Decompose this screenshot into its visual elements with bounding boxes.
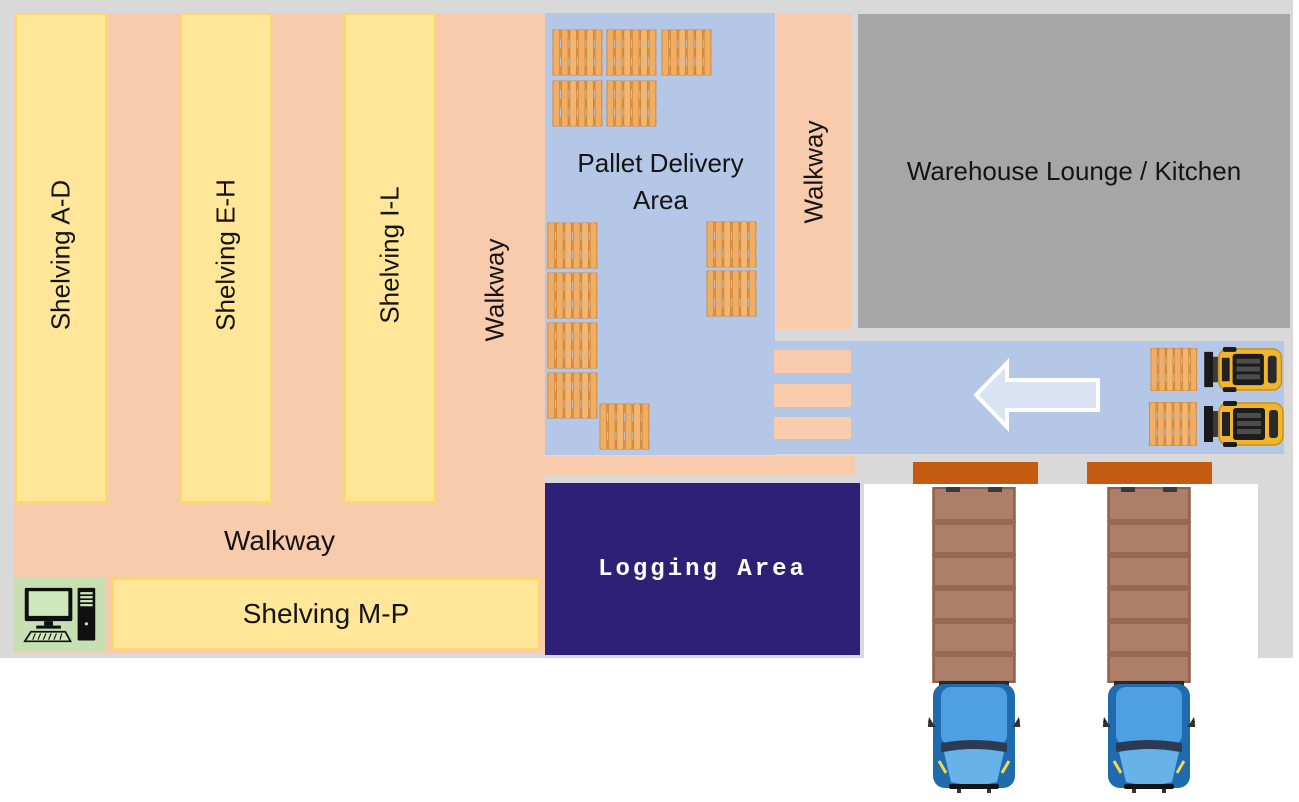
truck-cab-icon [1102,681,1196,794]
pallet-icon [706,221,757,268]
forklift-icon [1143,401,1285,447]
pallet-icon [547,372,598,419]
shelving-e-h-label: Shelving E-H [211,179,242,331]
area-shelving-m-p: Shelving M-P [112,578,540,650]
crosswalk-stripe [774,350,851,373]
pallet-icon [547,322,598,369]
walkway-bottom-label: Walkway [14,503,545,578]
loading-dock-door [1087,462,1212,484]
lounge-label: Warehouse Lounge / Kitchen [907,156,1241,187]
truck-cab-icon [927,681,1021,794]
pallet-icon [606,80,657,127]
pallet-icon [599,403,650,450]
pallet-icon [552,29,603,76]
shelving-a-d-label: Shelving A-D [46,180,77,330]
truck-trailer-icon [1107,487,1191,683]
pallet-icon [547,272,598,319]
loading-dock-door [913,462,1038,484]
crosswalk-stripe [774,417,851,439]
pallet-icon [552,80,603,127]
walkway-right-label: Walkway [799,120,830,223]
building-wall-right [1258,484,1293,658]
pallet-delivery-label: Pallet Delivery Area [548,142,773,222]
shelving-i-l-label: Shelving I-L [375,186,406,323]
crosswalk-stripe [774,384,851,407]
forklift-icon [1143,347,1285,392]
area-lounge-kitchen: Warehouse Lounge / Kitchen [858,14,1290,328]
walkway-left-label: Walkway [480,238,511,341]
warehouse-floor-plan: Warehouse Lounge / Kitchen Shelving A-D … [0,0,1299,802]
logging-workstation [13,578,106,651]
logging-label: Logging Area [598,556,807,583]
truck-trailer-icon [932,487,1016,683]
shelving-m-p-label: Shelving M-P [243,598,410,630]
pallet-icon [661,29,712,76]
computer-workstation-icon [23,587,97,643]
area-logging: Logging Area [545,483,860,655]
pallet-icon [606,29,657,76]
pallet-icon [706,270,757,317]
flow-direction-arrow-icon [965,355,1105,435]
area-walkway-strip-south [545,456,855,475]
pallet-icon [547,222,598,269]
